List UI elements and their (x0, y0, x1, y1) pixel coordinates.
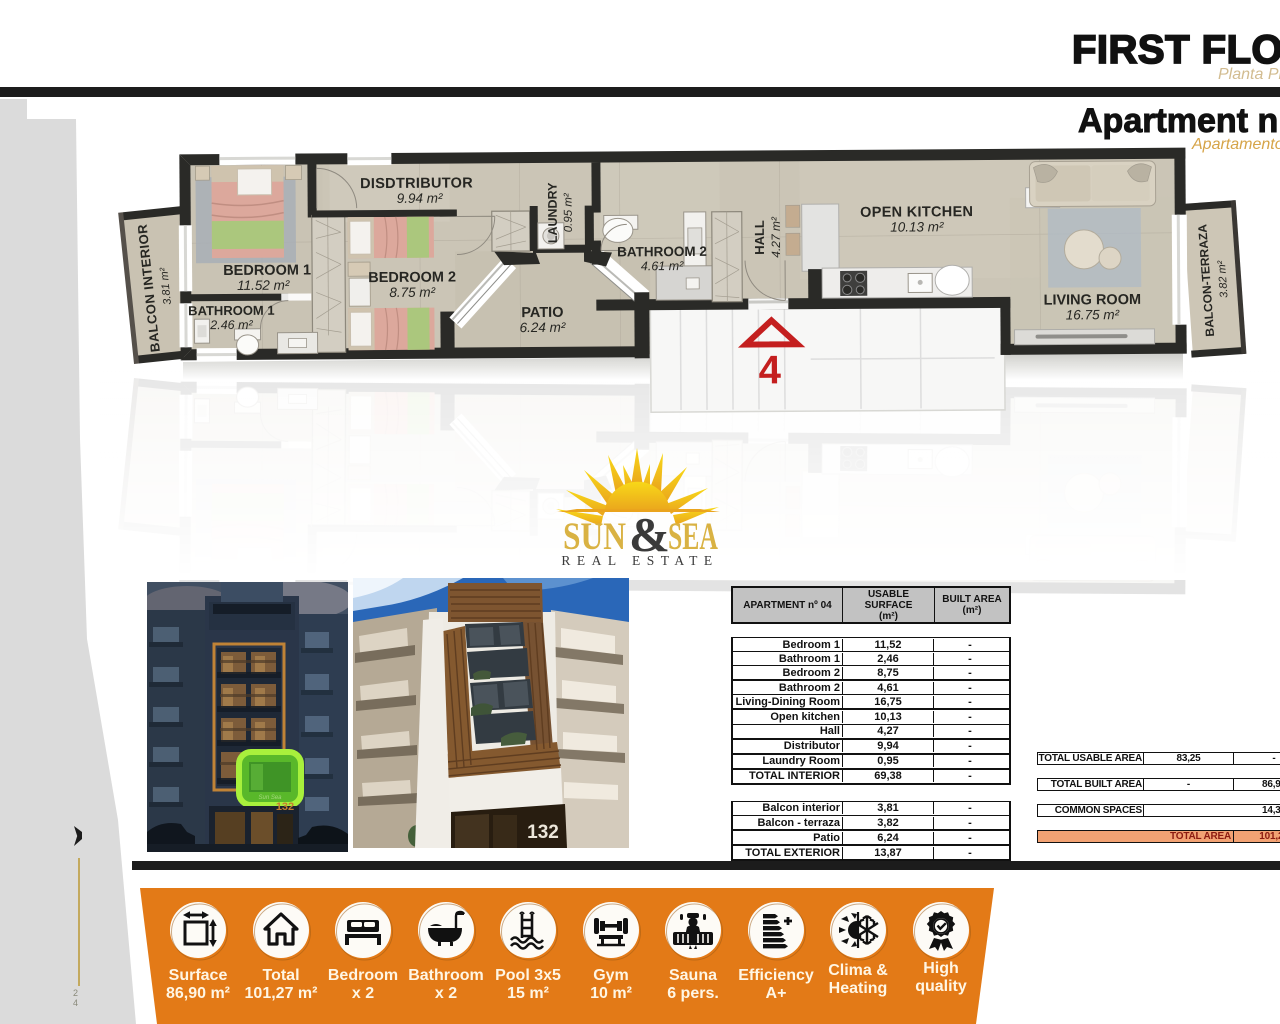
svg-text:4: 4 (759, 348, 782, 392)
svg-text:quality: quality (915, 978, 967, 995)
svg-text:101,27 m²: 101,27 m² (245, 985, 318, 1002)
svg-text:15 m²: 15 m² (507, 985, 549, 1002)
svg-text:REAL ESTATE: REAL ESTATE (561, 553, 718, 568)
svg-text:6 pers.: 6 pers. (667, 985, 719, 1002)
svg-text:Heating: Heating (829, 980, 888, 997)
svg-text:Gym: Gym (593, 967, 629, 984)
svg-text:132: 132 (527, 822, 559, 843)
svg-text:SEA: SEA (668, 515, 718, 558)
svg-text:86,90 m²: 86,90 m² (166, 985, 230, 1002)
svg-text:Efficiency: Efficiency (738, 967, 814, 984)
svg-text:Bedroom: Bedroom (328, 967, 398, 984)
svg-text:132: 132 (276, 801, 294, 813)
svg-text:Total: Total (262, 967, 299, 984)
svg-text:x 2: x 2 (435, 985, 457, 1002)
svg-text:Clima &: Clima & (828, 962, 888, 979)
svg-text:A+: A+ (766, 985, 787, 1002)
svg-text:10 m²: 10 m² (590, 985, 632, 1002)
svg-text:Surface: Surface (169, 967, 228, 984)
svg-text:Sauna: Sauna (669, 967, 717, 984)
svg-text:High: High (923, 960, 959, 977)
svg-text:x 2: x 2 (352, 985, 374, 1002)
svg-text:Pool 3x5: Pool 3x5 (495, 967, 561, 984)
svg-text:Bathroom: Bathroom (408, 967, 484, 984)
svg-text:SUN: SUN (563, 515, 626, 558)
